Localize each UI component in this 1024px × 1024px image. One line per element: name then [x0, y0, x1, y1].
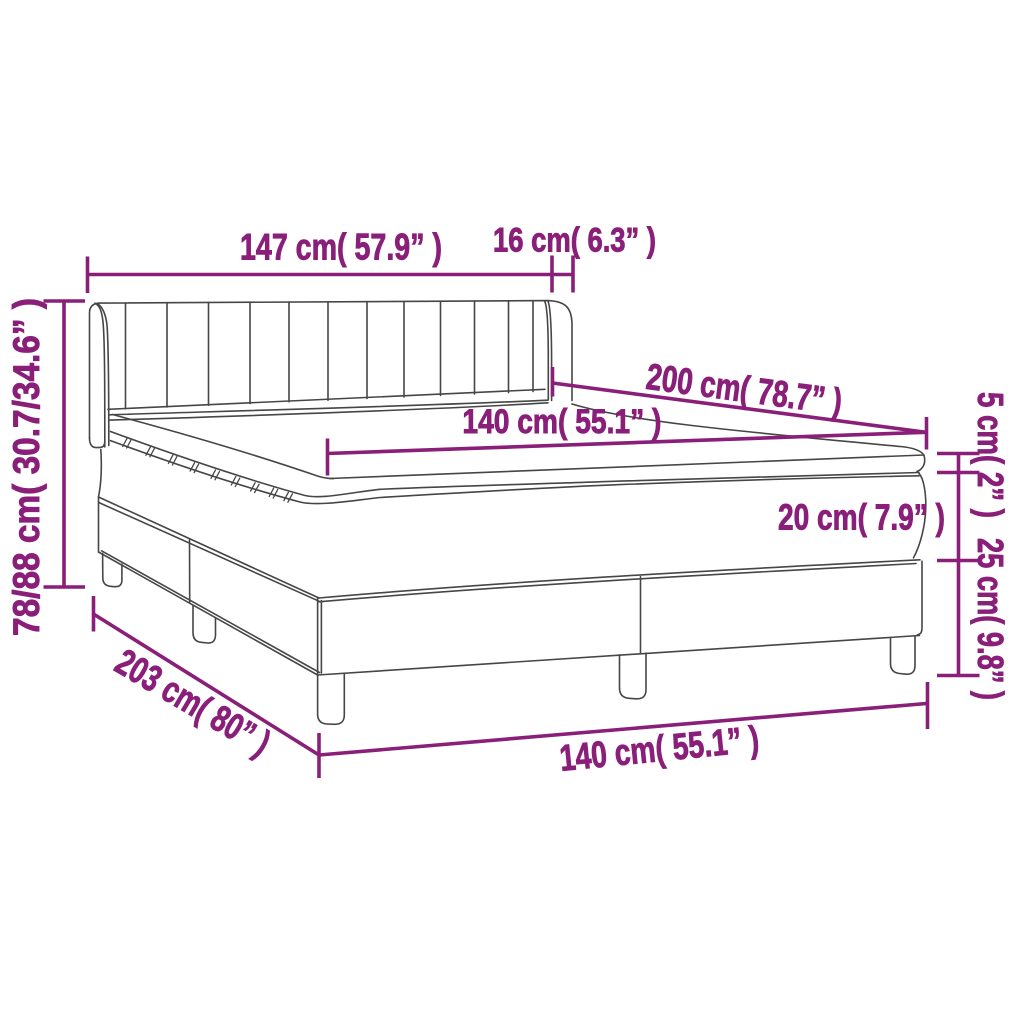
svg-text:25 cm( 9.8” ): 25 cm( 9.8” ): [970, 538, 1011, 700]
svg-text:5 cm( 2” ): 5 cm( 2” ): [970, 392, 1011, 518]
svg-text:16 cm( 6.3” ): 16 cm( 6.3” ): [493, 222, 656, 260]
svg-text:140 cm( 55.1” ): 140 cm( 55.1” ): [462, 403, 661, 441]
svg-text:20 cm( 7.9” ): 20 cm( 7.9” ): [778, 497, 945, 538]
svg-text:147 cm( 57.9” ): 147 cm( 57.9” ): [240, 227, 442, 268]
svg-text:78/88 cm( 30.7/34.6” ): 78/88 cm( 30.7/34.6” ): [6, 298, 47, 636]
